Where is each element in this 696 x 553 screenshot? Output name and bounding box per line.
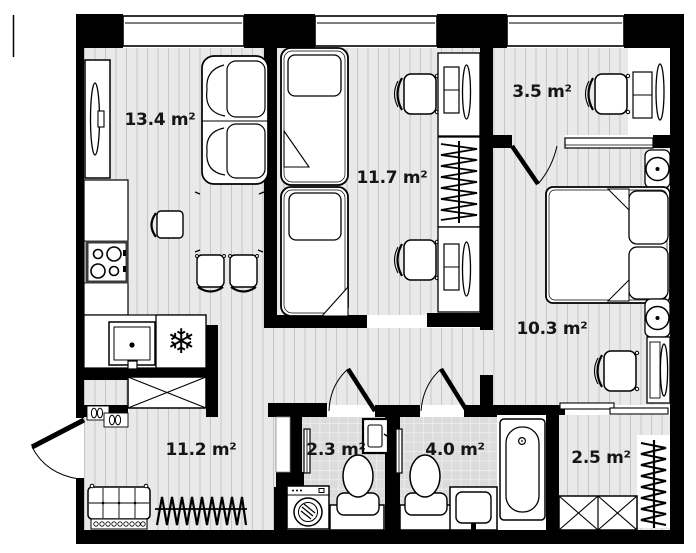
monitor-icon (463, 242, 471, 296)
pillow (289, 193, 341, 240)
duct-shaft (276, 417, 290, 472)
chair-up-2 (229, 255, 259, 292)
desk-unit-2 (438, 227, 480, 312)
window-3 (507, 16, 624, 46)
hall-bench (88, 484, 150, 529)
windows (123, 16, 624, 46)
nightstand-speaker-2 (645, 299, 670, 337)
closet-wardrobe-x (559, 496, 637, 530)
label-kids: 11.7 m² (357, 168, 428, 188)
monitor-icon (656, 64, 664, 120)
single-bed-1 (281, 48, 348, 185)
hall-wardrobe-x (128, 377, 206, 408)
window-1 (123, 16, 244, 46)
single-bed-2 (281, 187, 348, 316)
bedroom-desk (647, 337, 670, 403)
pillow (629, 247, 668, 299)
monitor-icon (463, 65, 471, 119)
label-living: 13.4 m² (125, 110, 196, 130)
kitchen-sink-icon (109, 322, 155, 373)
snowflake-icon: ❄ (167, 322, 196, 362)
bathtub-icon (500, 419, 545, 520)
fridge-icon: ❄ (156, 315, 206, 368)
monitor-icon (660, 344, 667, 396)
chair-up-1 (196, 255, 226, 292)
hanger-wardrobe (438, 137, 480, 227)
label-wc: 2.3 m² (306, 440, 365, 460)
washing-machine-icon (287, 486, 329, 529)
pillow (288, 55, 341, 96)
shoe-dots (94, 522, 145, 526)
double-bed (546, 187, 670, 303)
label-closet: 2.5 m² (571, 448, 630, 468)
label-bedroom: 10.3 m² (517, 319, 588, 339)
desk-unit-1 (438, 53, 480, 136)
window-2 (315, 16, 437, 46)
stove-icon (87, 242, 127, 282)
pillow (629, 191, 668, 244)
dressing-desk (633, 64, 664, 120)
tv-unit (85, 60, 110, 178)
water-heater-icon (363, 419, 388, 453)
floor-bedroom-doorway (483, 330, 493, 375)
floor-plan-svg: ❄ (0, 0, 696, 553)
label-bathroom: 4.0 m² (425, 440, 484, 460)
bath-sink-icon (450, 487, 497, 533)
floor-hall-arm (215, 328, 483, 405)
floor-plan-page: ❄ (0, 0, 696, 553)
sliding-partition-dressing (565, 138, 653, 148)
label-hallway: 11.2 m² (166, 440, 237, 460)
sofa (202, 56, 268, 184)
label-dressing: 3.5 m² (512, 82, 571, 102)
entrance-door (32, 420, 84, 479)
nightstand-speaker-1 (645, 150, 670, 188)
